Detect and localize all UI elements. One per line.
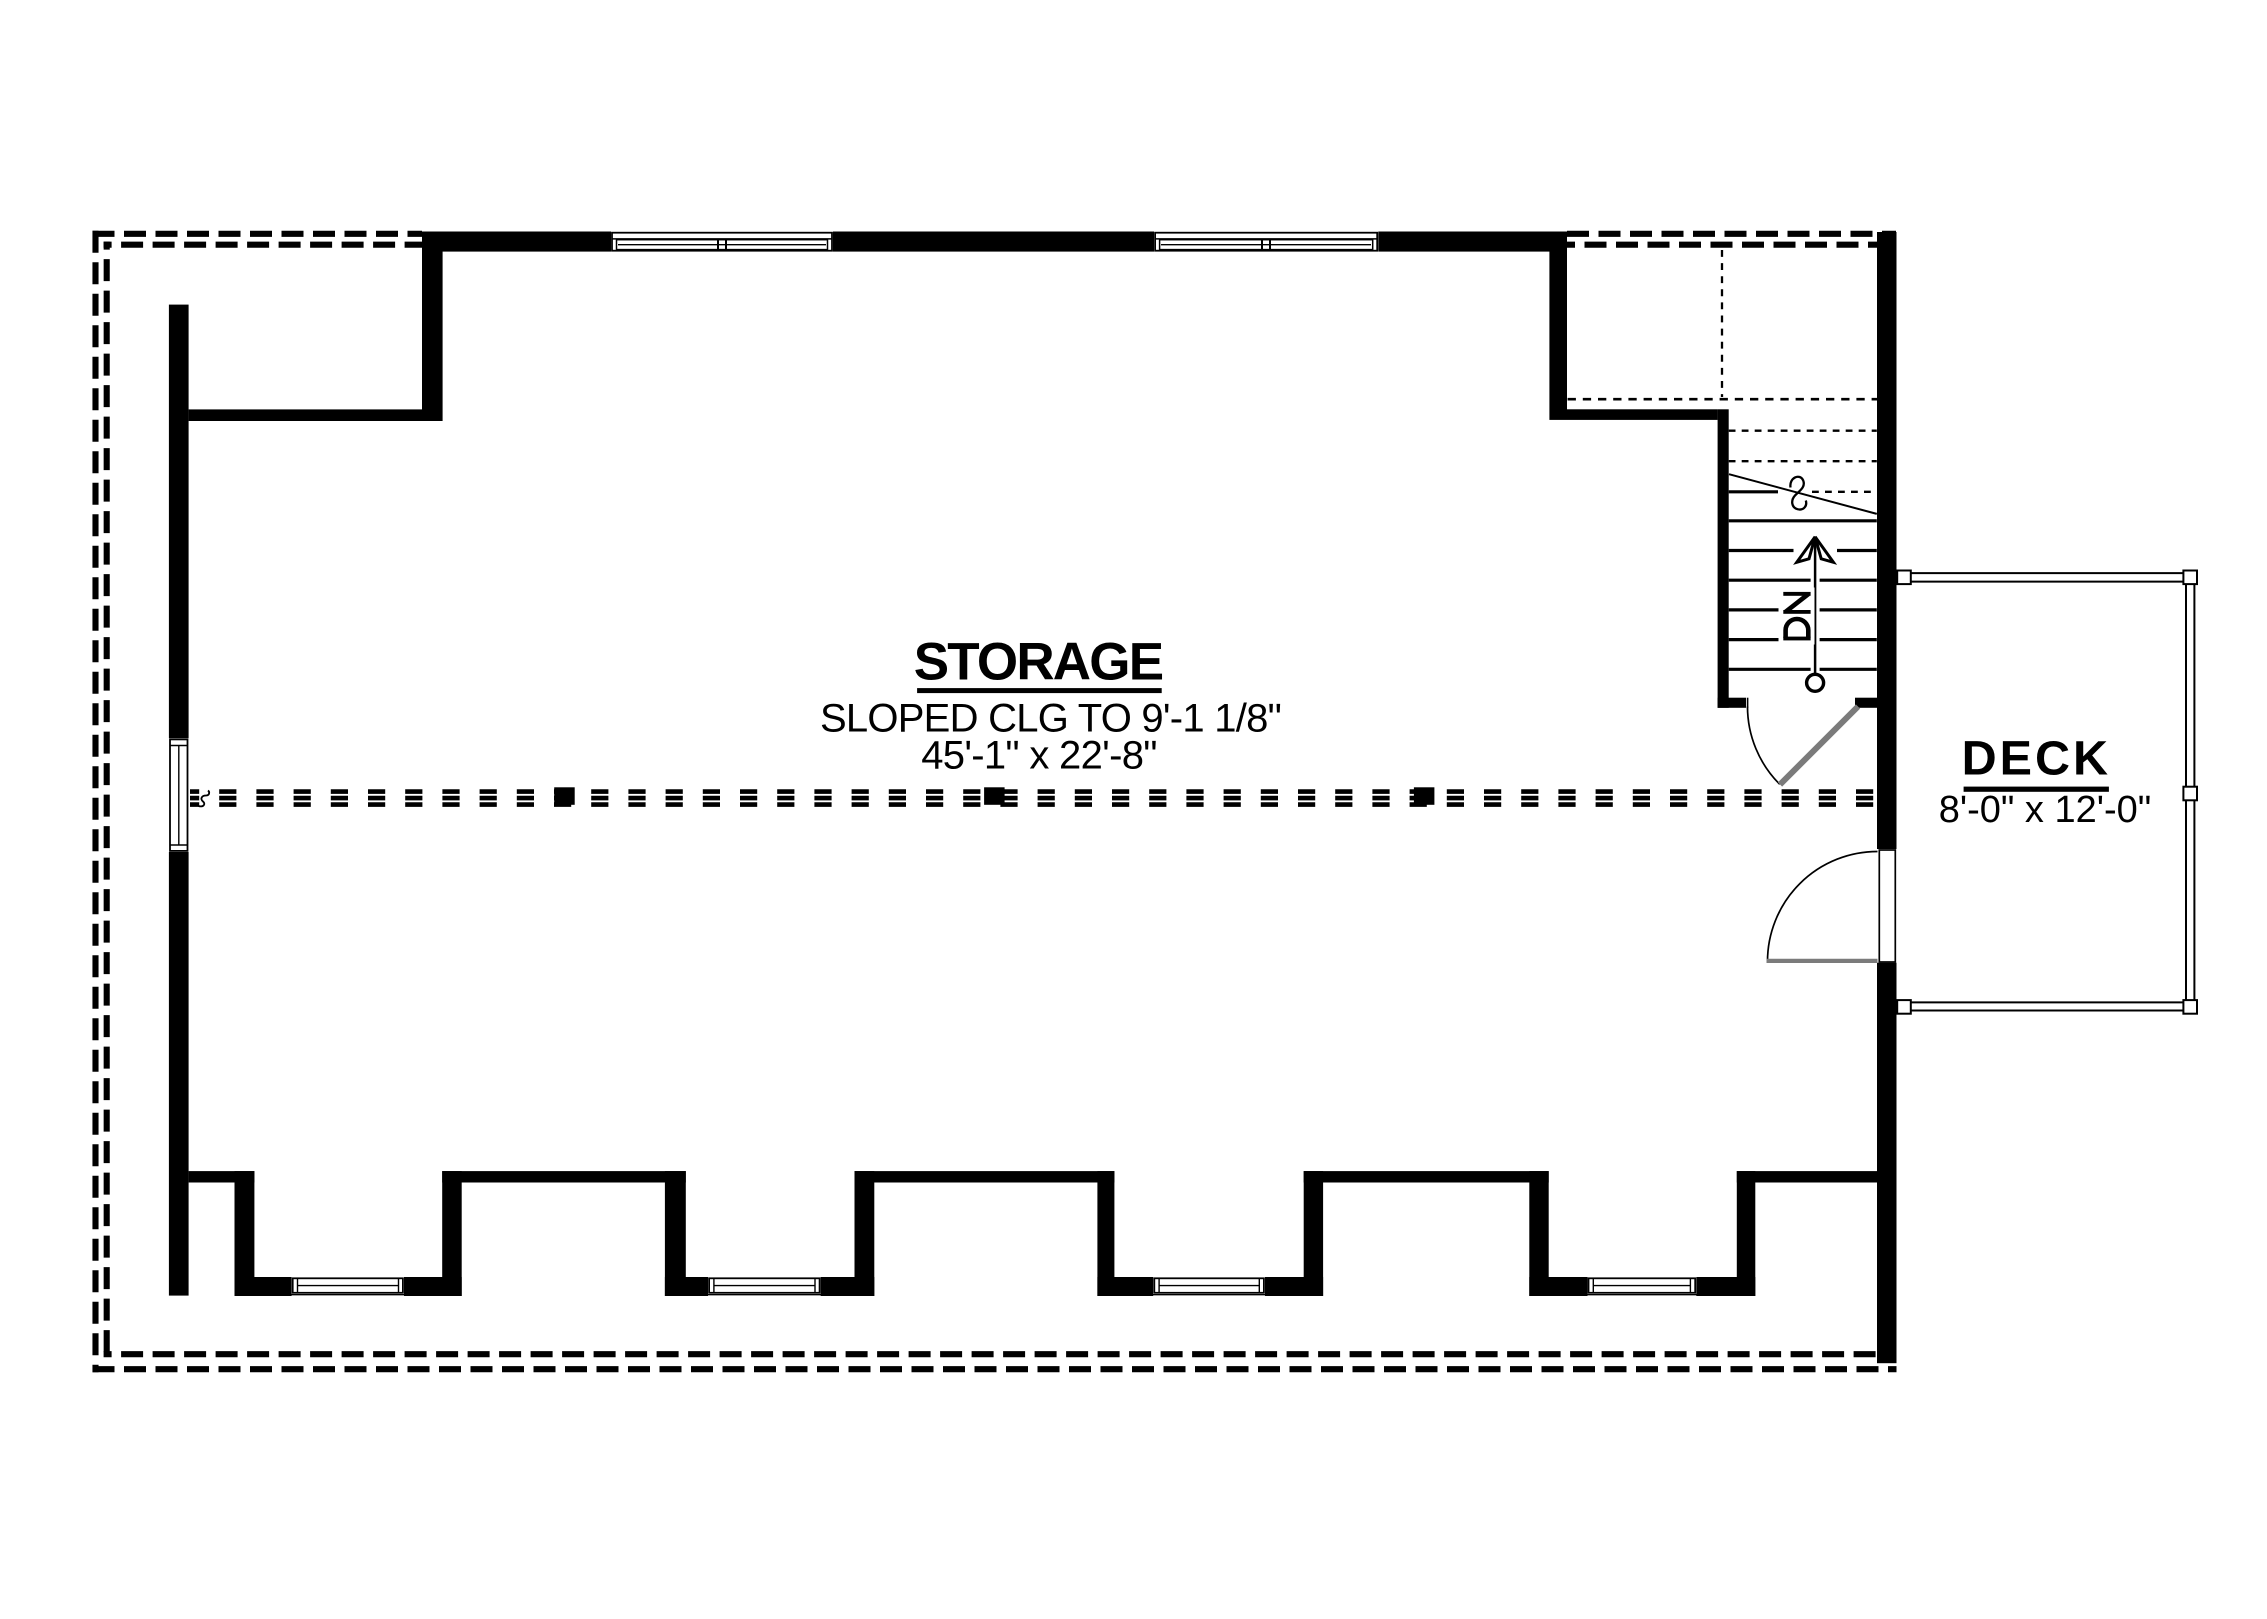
svg-text:DECK: DECK	[1962, 732, 2111, 786]
svg-text:STORAGE: STORAGE	[914, 632, 1163, 691]
svg-text:8'-0" x 12'-0": 8'-0" x 12'-0"	[1939, 789, 2152, 831]
svg-text:45'-1" x 22'-8": 45'-1" x 22'-8"	[921, 733, 1157, 777]
